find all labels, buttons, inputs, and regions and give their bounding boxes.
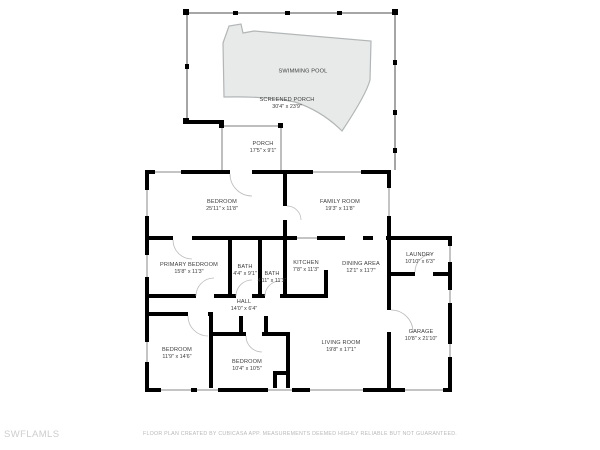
room-dims: 10'8" x 21'10" [405,336,438,343]
room-name: BATH [233,264,257,271]
room-label-porch: PORCH 17'5" x 9'1" [250,141,277,155]
mls-watermark: SWFLAMLS [4,429,59,440]
room-dims: 11'9" x 14'6" [162,354,192,361]
room-dims: 15'8" x 11'3" [160,269,218,276]
swimming-pool-shape [223,24,371,131]
room-label-dining-area: DINING AREA 12'1" x 11'7" [342,261,380,275]
room-label-bedroom-middle: BEDROOM 10'4" x 10'5" [232,359,262,373]
room-name: PORCH [250,141,277,148]
room-dims: 10'10" x 6'3" [405,259,435,266]
room-name: LAUNDRY [405,252,435,259]
room-name: BEDROOM [162,347,192,354]
room-name: GARAGE [405,329,438,336]
room-name: FAMILY ROOM [320,199,360,206]
room-dims: 30'4" x 23'9" [260,104,315,111]
room-dims: 19'3" x 11'8" [320,206,360,213]
room-name: PRIMARY BEDROOM [160,262,218,269]
room-dims: 7'8" x 11'3" [293,267,319,274]
room-name: BEDROOM [232,359,262,366]
room-label-bedroom-left: BEDROOM 11'9" x 14'6" [162,347,192,361]
door-openings [173,169,433,337]
room-dims: 14'0" x 6'4" [231,306,258,313]
room-name: KITCHEN [293,260,319,267]
room-dims: 4'11" x 11'3" [258,278,287,285]
room-dims: 19'8" x 17'1" [322,347,361,354]
room-label-swimming-pool: SWIMMING POOL [279,69,328,76]
room-label-garage: GARAGE 10'8" x 21'10" [405,329,438,343]
floor-plan-drawing [0,0,600,450]
room-name: DINING AREA [342,261,380,268]
room-label-laundry: LAUNDRY 10'10" x 6'3" [405,252,435,266]
room-label-bath-1: BATH 4'4" x 9'1" [233,264,257,278]
room-label-kitchen: KITCHEN 7'8" x 11'3" [293,260,319,274]
room-name: LIVING ROOM [322,340,361,347]
room-label-bedroom-top: BEDROOM 25'11" x 11'8" [206,199,238,213]
room-label-screened-porch: SCREENED PORCH 30'4" x 23'9" [260,97,315,111]
room-dims: 10'4" x 10'5" [232,366,262,373]
room-name: HALL [231,299,258,306]
room-name: BATH [258,271,287,278]
room-dims: 12'1" x 11'7" [342,268,380,275]
room-label-family-room: FAMILY ROOM 19'3" x 11'8" [320,199,360,213]
room-dims: 25'11" x 11'8" [206,206,238,213]
room-dims: 4'4" x 9'1" [233,271,257,278]
room-label-bath-2: BATH 4'11" x 11'3" [258,271,287,285]
floor-plan-canvas: SWIMMING POOL SCREENED PORCH 30'4" x 23'… [0,0,600,450]
room-label-living-room: LIVING ROOM 19'8" x 17'1" [322,340,361,354]
room-label-hall: HALL 14'0" x 6'4" [231,299,258,313]
room-label-primary-bedroom: PRIMARY BEDROOM 15'8" x 11'3" [160,262,218,276]
room-name: SWIMMING POOL [279,69,328,76]
room-name: BEDROOM [206,199,238,206]
room-dims: 17'5" x 9'1" [250,148,277,155]
room-name: SCREENED PORCH [260,97,315,104]
disclaimer-text: FLOOR PLAN CREATED BY CUBICASA APP. MEAS… [143,431,457,437]
